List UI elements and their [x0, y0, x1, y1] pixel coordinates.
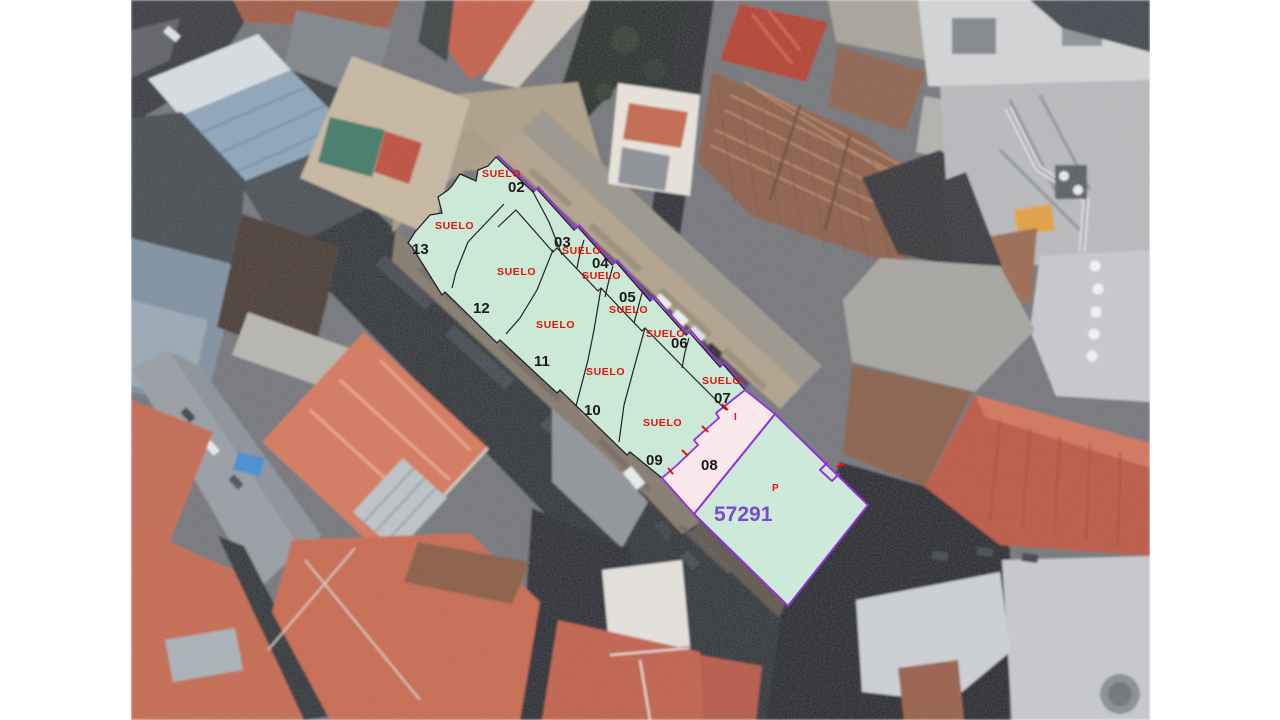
svg-text:P: P	[772, 483, 779, 494]
svg-text:SUELO: SUELO	[536, 319, 575, 331]
svg-text:SUELO: SUELO	[702, 375, 741, 387]
svg-text:11: 11	[534, 353, 550, 370]
svg-text:I: I	[734, 412, 737, 423]
svg-text:10: 10	[584, 402, 601, 419]
svg-text:SUELO: SUELO	[586, 366, 625, 378]
svg-text:SUELO: SUELO	[497, 266, 536, 278]
svg-text:SUELO: SUELO	[435, 220, 474, 232]
svg-text:03: 03	[554, 234, 571, 251]
svg-text:07: 07	[714, 390, 731, 407]
svg-text:08: 08	[701, 457, 718, 474]
svg-text:02: 02	[508, 179, 525, 196]
svg-text:13: 13	[412, 241, 429, 258]
svg-text:09: 09	[646, 452, 663, 469]
svg-text:04: 04	[592, 255, 609, 272]
svg-text:12: 12	[473, 300, 490, 317]
svg-text:06: 06	[671, 335, 688, 352]
svg-text:SUELO: SUELO	[643, 417, 682, 429]
svg-text:05: 05	[619, 289, 636, 306]
svg-text:57291: 57291	[714, 503, 773, 526]
